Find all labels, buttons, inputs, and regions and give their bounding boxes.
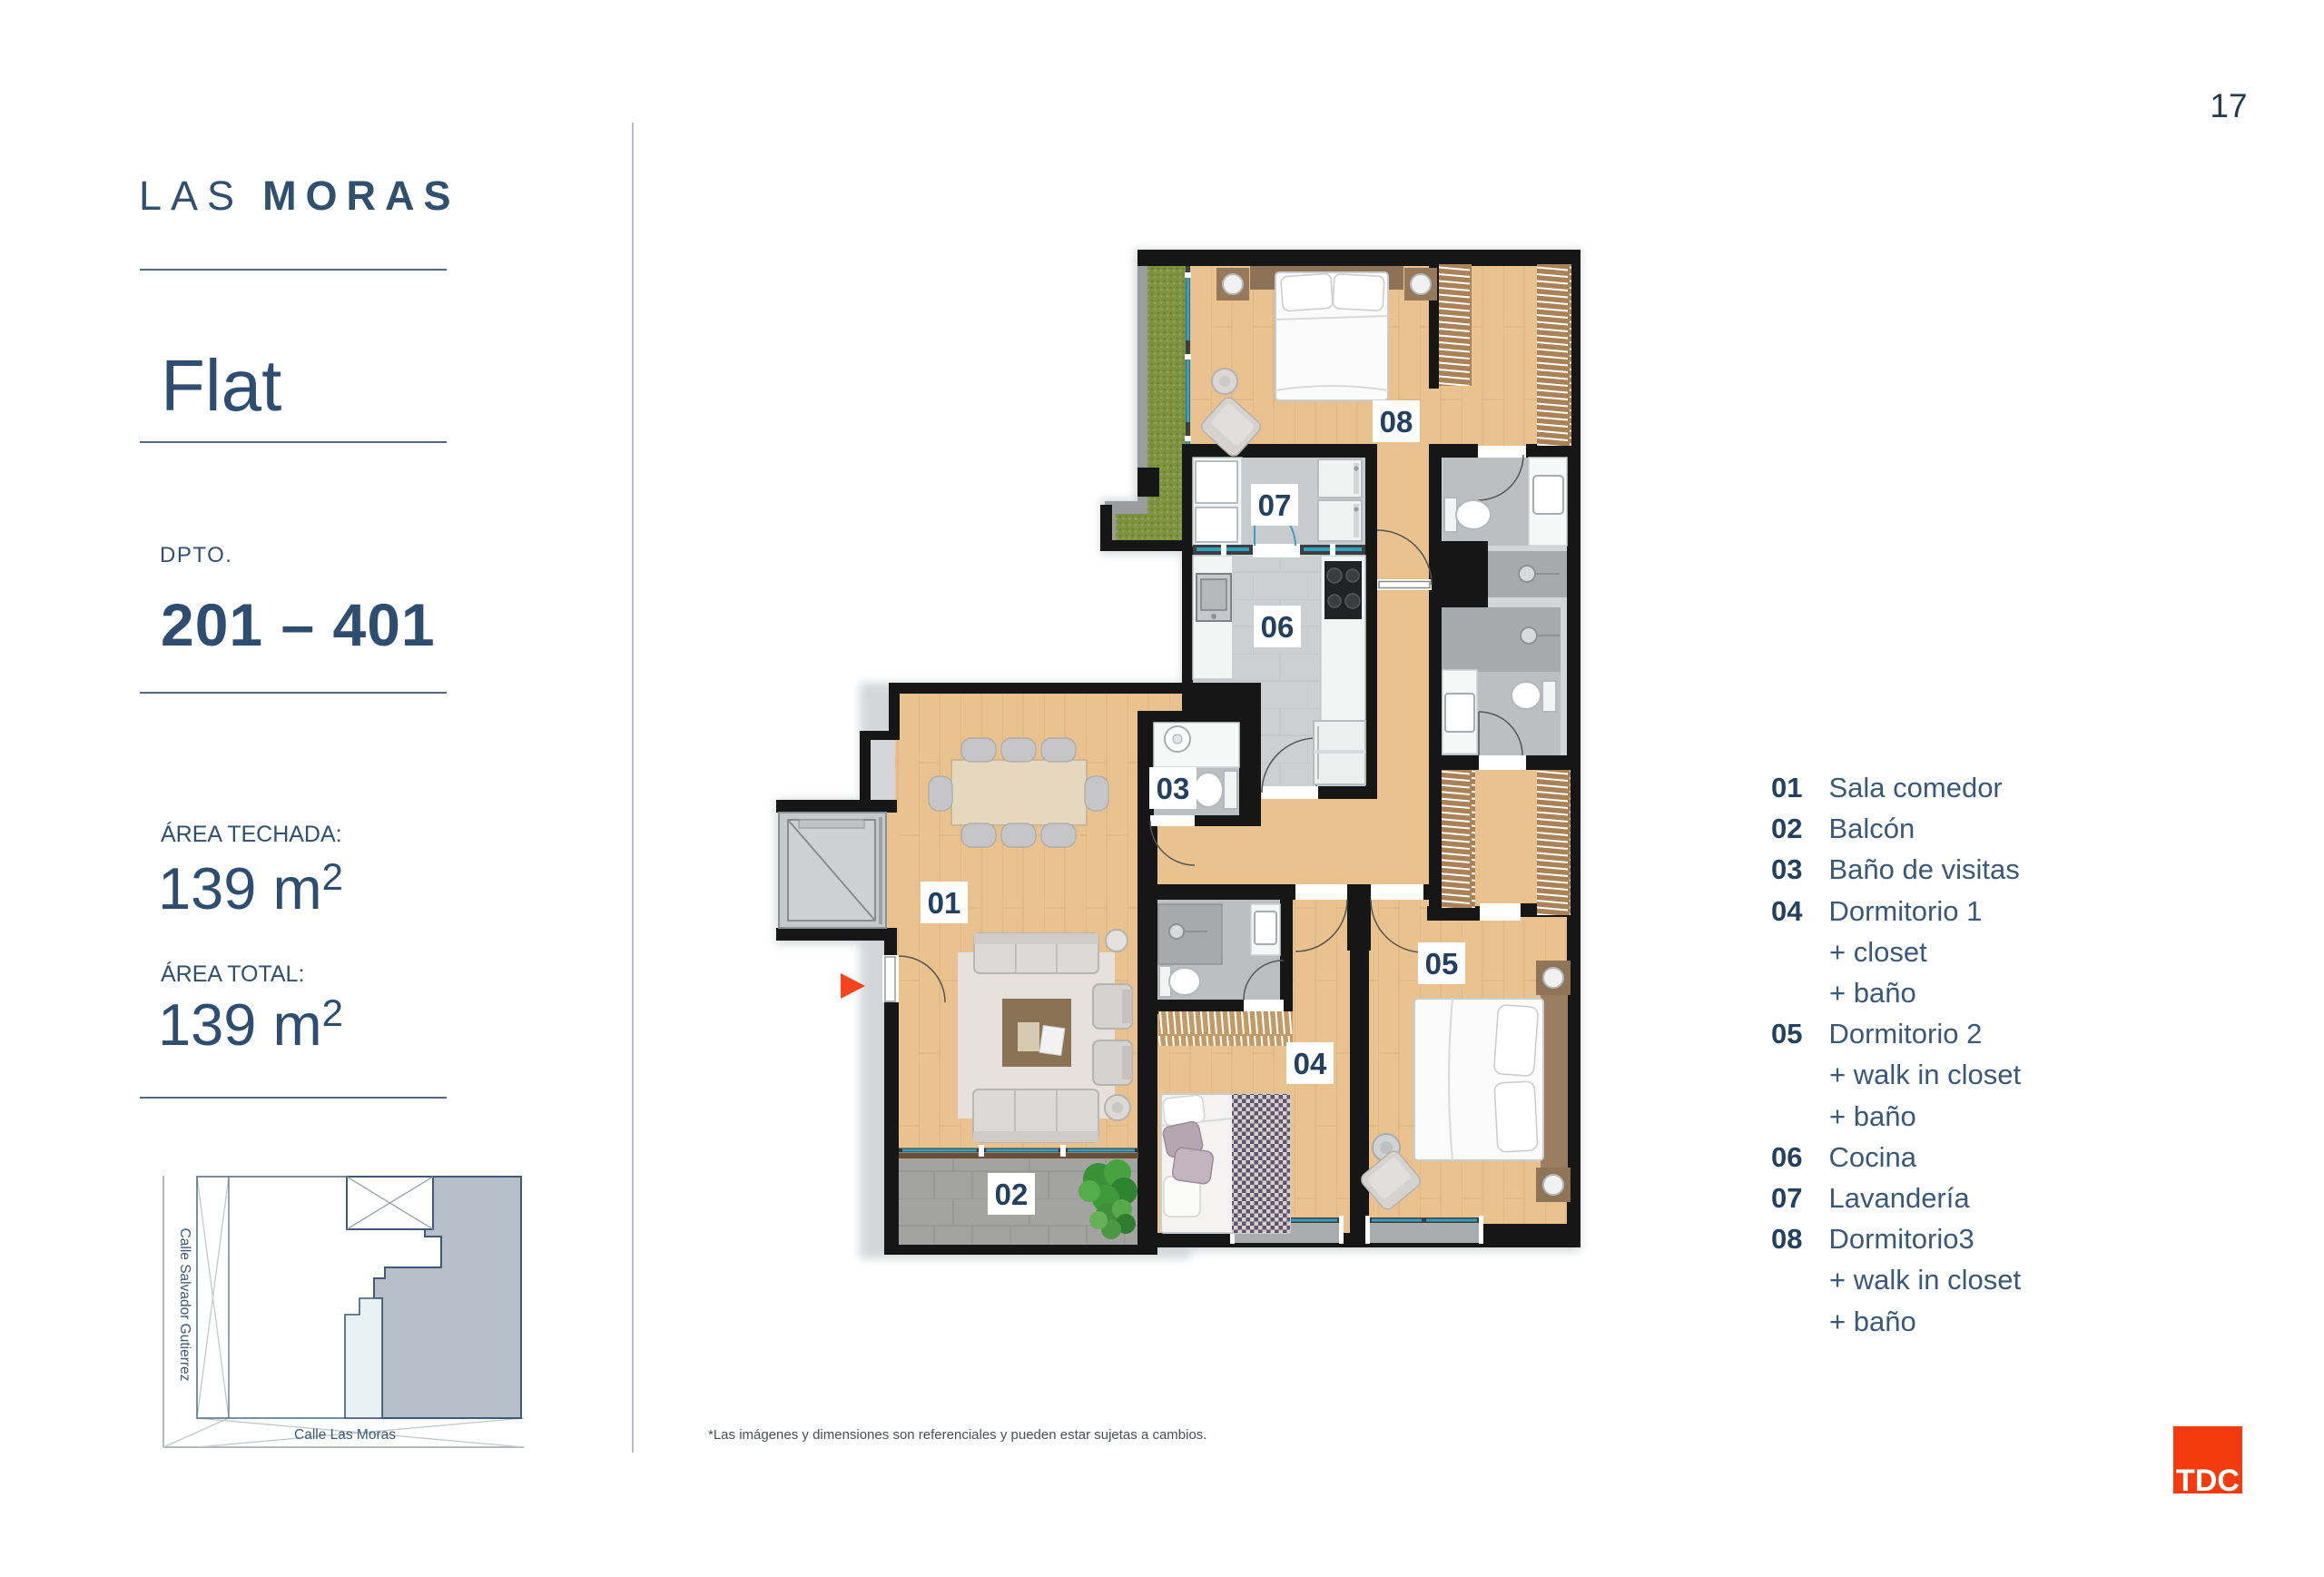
svg-text:04: 04 [1294, 1047, 1327, 1080]
svg-text:Calle Las Moras: Calle Las Moras [294, 1427, 396, 1443]
svg-text:06: 06 [1261, 610, 1295, 644]
svg-text:01: 01 [928, 886, 961, 920]
svg-text:08: 08 [1380, 405, 1413, 439]
svg-text:02: 02 [995, 1178, 1029, 1211]
svg-text:03: 03 [1157, 772, 1190, 805]
svg-text:Calle Salvador Gutierrez: Calle Salvador Gutierrez [177, 1228, 192, 1382]
svg-text:05: 05 [1425, 947, 1459, 981]
svg-text:07: 07 [1258, 488, 1292, 522]
